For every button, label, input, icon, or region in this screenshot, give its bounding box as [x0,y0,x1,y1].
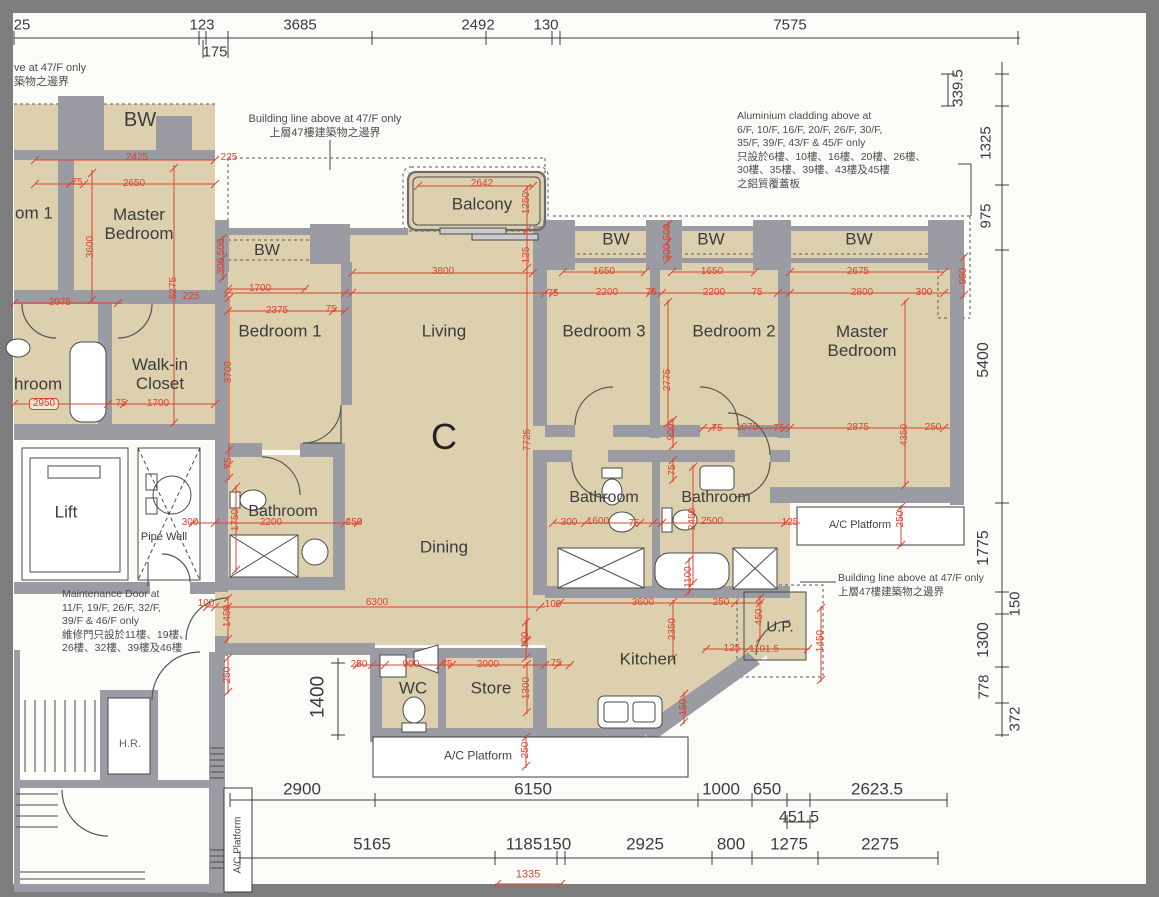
room-label-master-bedroom: Master Bedroom [828,322,897,360]
dimension-label: 1300 [522,677,532,699]
dimension-label: 2375 [266,306,288,316]
dimension-label: 6150 [514,781,552,798]
room-label-kitchen: Kitchen [620,649,677,668]
dimension-label: 300 [182,518,199,528]
dimension-label: 500 [663,224,673,241]
dimension-label: 125 [522,247,532,264]
dimension-label: 225 [183,292,200,302]
room-label-bw-bed3: BW [602,229,629,248]
dimension-label: 900 [403,660,420,670]
annotation-top-left-partial: ve at 47/F only 築物之邊界 [14,62,86,89]
dimension-label: 150 [1008,591,1023,616]
unit-letter: C [431,417,457,457]
dimension-label: 2492 [461,18,494,33]
dimension-label: 1250 [522,192,532,214]
dimension-label: 300 [561,518,578,528]
dimension-label: 778 [977,674,992,699]
dimension-label: 1335 [516,870,540,881]
dimension-label: 2675 [847,267,869,277]
dimension-label: 950 [959,268,969,285]
dimension-label: 1325 [979,126,994,159]
dimension-label: 300 [217,258,227,275]
dimension-label: 2350 [668,618,678,640]
annotation-aluminium-cladding: Aluminium cladding above at 6/F, 10/F, 1… [737,110,926,191]
dimension-label: 250 [223,667,233,684]
dimension-label: 1600 [587,517,609,527]
dimension-label: 5275 [169,277,179,299]
annotation-building-line-right: Building line above at 47/F only 上層47樓建築… [838,572,984,599]
dimension-label: 75 [711,424,722,434]
room-label-bw-living: BW [254,242,280,260]
room-label-bathroom-1: Bathroom [248,503,317,521]
dimension-label: 2200 [260,518,282,528]
dimension-label: 1700 [147,399,169,409]
dimension-label: 2950 [29,398,59,410]
dimension-label: 123 [189,18,214,33]
dimension-label: 2275 [861,836,899,853]
dimension-label: 1075 [736,423,758,433]
dimension-label: 75 [773,424,784,434]
dimension-label: 150 [679,699,689,716]
room-label-walk-in-closet: Walk-in Closet [132,355,188,393]
dimension-label: 1101.5 [749,645,779,655]
dimension-label: 100 [521,632,531,649]
dimension-label: 75 [224,457,234,468]
dimension-label: 372 [1008,706,1023,731]
dimension-label: 3600 [86,236,96,258]
dimension-label: 1400 [309,676,328,718]
dimension-label: 75 [751,288,762,298]
dimension-label: 3700 [224,361,234,383]
dimension-label: 130 [533,18,558,33]
dimension-label: 1700 [249,284,271,294]
dimension-label: 2200 [596,288,618,298]
dimension-label: 75 [645,288,656,298]
label-ac-platform-right: A/C Platform [829,519,891,531]
dimension-label: 1450 [223,605,233,627]
dimension-label: 2000 [477,660,499,670]
dimension-label: 800 [717,836,745,853]
dimension-label: 300 [916,288,933,298]
room-label-bw-bed2: BW [697,229,724,248]
dimension-label: 1275 [770,836,808,853]
dimension-label: 250 [925,423,942,433]
dimension-label: 250 [346,518,363,528]
dimension-label: 2925 [626,836,664,853]
dimension-label: 75 [441,660,452,670]
dimension-label: 450 [755,609,765,626]
dimension-label: 75 [325,305,336,315]
dimension-label: 1300 [976,622,992,658]
floor-plan-page: BW om 1 Master Bedroom hroom Walk-in Clo… [0,0,1159,897]
dimension-label: 75 [668,464,678,475]
room-label-bw-master: BW [845,229,872,248]
room-label-bedroom-2: Bedroom 2 [692,321,775,340]
dimension-label: 5165 [353,836,391,853]
dimension-label: 3685 [283,18,316,33]
dimension-label: 975 [979,203,994,228]
room-label-bedroom-1: Bedroom 1 [238,321,321,340]
room-label-hr: H.R. [119,738,141,750]
room-label-dining: Dining [420,537,468,556]
room-label-bathroom-3: Bathroom [681,489,750,507]
dimension-label: 1185 [506,836,543,853]
dimension-label: 250 [351,660,368,670]
dimension-label: 2500 [701,517,723,527]
dimension-label: 2425 [126,153,148,163]
room-label-up: U.P. [766,620,793,637]
room-label-bathroom-partial: hroom [14,374,62,393]
label-ac-platform-left: A/C Platform [232,817,243,874]
dimension-label: 75 [115,399,126,409]
dimension-label: 75 [628,519,639,529]
label-ac-platform-bottom: A/C Platform [444,749,512,762]
dimension-label: 2800 [851,288,873,298]
dimension-label: 650 [753,781,781,798]
dimension-label: 2450 [688,508,698,530]
room-label-wc: WC [399,678,427,697]
dimension-label: 1000 [702,781,740,798]
dimension-label: 75 [550,659,561,669]
dimension-label: 2875 [847,423,869,433]
dimension-label: 2900 [283,781,321,798]
dimension-label: 3600 [632,598,654,608]
dimension-label: 250 [521,742,531,759]
dimension-label: 75 [547,289,558,299]
dimension-label: 3800 [432,267,454,277]
room-label-store: Store [471,678,512,697]
dimension-label: 339.5 [951,69,966,107]
dimension-label: 500 [217,239,227,256]
dimension-label: 1450 [816,630,826,652]
dimension-label: 175 [202,45,227,60]
dimension-label: 2642 [471,179,493,189]
dimension-label: 7725 [523,429,533,451]
dimension-label: 5400 [976,342,992,378]
dimension-label: 2775 [663,369,673,391]
dimension-label: 2075 [49,298,71,308]
room-label-lift: Lift [55,502,78,521]
dimension-label: 1775 [976,530,992,566]
dimension-label: 451.5 [779,810,819,826]
dimension-label: 250 [713,598,730,608]
dimension-label: 225 [221,153,238,163]
room-label-bedroom-3: Bedroom 3 [562,321,645,340]
dimension-label: 1650 [701,267,723,277]
dimension-label: 900 [667,424,677,441]
dimension-label: 125 [724,644,741,654]
annotation-building-line-top: Building line above at 47/F only 上層47樓建築… [249,113,402,140]
dimension-label: 150 [543,836,571,853]
room-label-living: Living [422,321,466,340]
dimension-label: 250 [896,511,906,528]
dimension-label: 1650 [593,267,615,277]
dimension-label: 1750 [231,509,241,531]
room-label-bw-left: BW [124,109,156,131]
dimension-label: 4350 [900,424,910,446]
room-label-bedroom-partial: om 1 [15,203,53,222]
dimension-label: 1100 [684,566,694,588]
dimension-label: 100 [545,600,562,610]
dimension-label: 6300 [366,598,388,608]
dimension-label: 100 [198,599,215,609]
room-label-balcony: Balcony [452,194,512,213]
dimension-label: 2650 [123,179,145,189]
dimension-label: 75 [71,178,82,188]
room-label-bathroom-2: Bathroom [569,489,638,507]
dimension-label: 2623.5 [851,781,903,798]
dimension-label: 2200 [703,288,725,298]
room-label-pipe-well: Pipe Well [141,531,187,543]
dimension-label: 300 [663,244,673,261]
dimension-label: 25 [14,18,31,33]
room-label-master-bedroom-left: Master Bedroom [105,205,174,243]
dimension-label: 125 [782,518,799,528]
dimension-label: 7575 [773,18,806,33]
annotation-maintenance-door: Maintenance Door at 11/F, 19/F, 26/F, 32… [62,588,190,656]
